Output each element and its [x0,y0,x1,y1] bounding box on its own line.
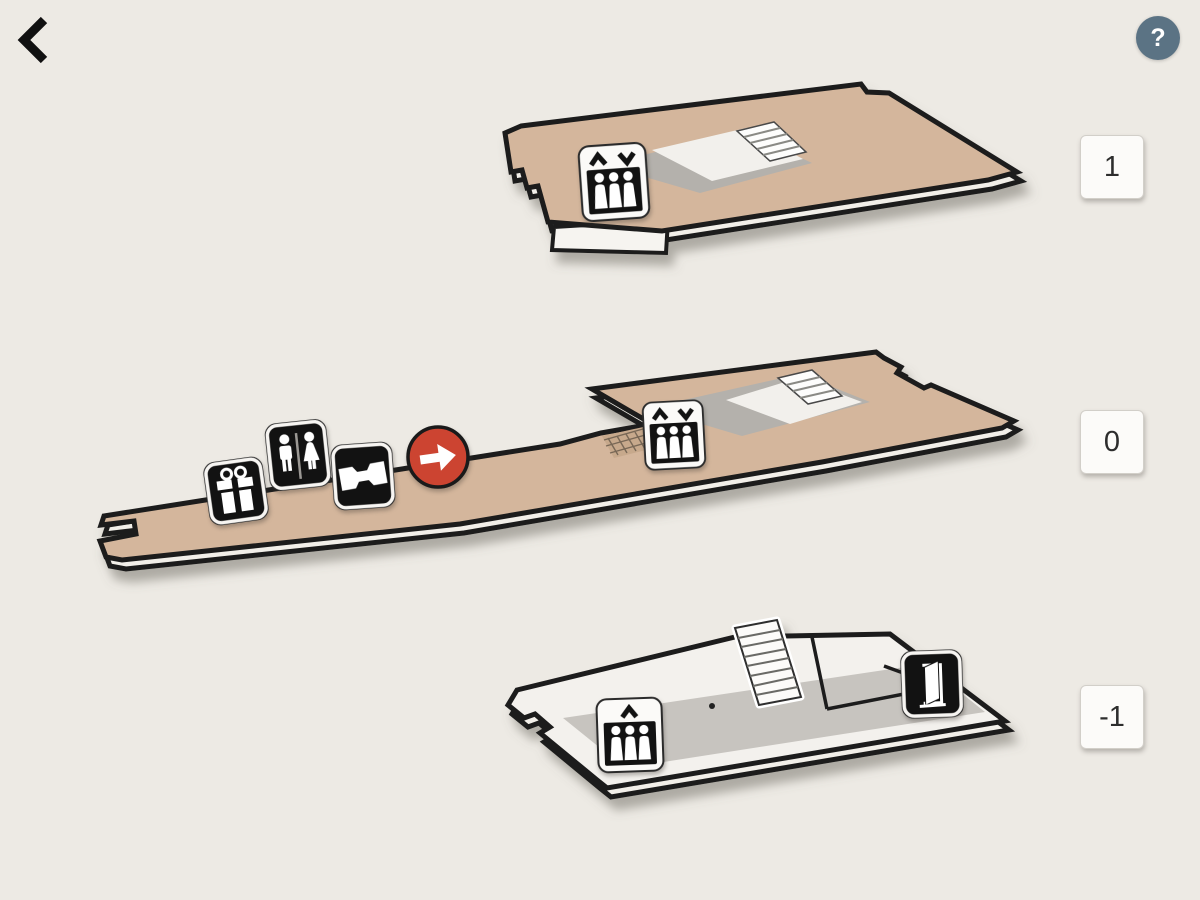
floor-selector-button-0[interactable]: 0 [1080,410,1144,474]
exit-door-art [900,649,964,719]
floor-m1-column-dot [709,703,715,709]
app-root: { "view": { "title": "building-floor-lev… [0,0,1200,900]
floor-selector-button-minus1[interactable]: -1 [1080,685,1144,749]
floor-label-1: 1 [1104,151,1120,184]
restrooms-icon[interactable] [264,418,333,492]
elevator-up-art [595,695,666,775]
floor-label-0: 0 [1104,426,1120,459]
floor-label-minus1: -1 [1099,701,1125,734]
you-are-here-arrow-icon[interactable] [404,423,472,491]
restrooms-art [264,418,333,492]
elevator-up-down-icon[interactable] [640,398,708,471]
elevator-up-down-art [640,398,708,471]
exit-door-icon[interactable] [900,649,964,719]
gift-shop-art [202,455,270,527]
you-are-here-art [404,423,472,491]
chevron-left-icon [12,14,52,66]
gift-shop-icon[interactable] [202,455,270,527]
floor-selector-button-1[interactable]: 1 [1080,135,1144,199]
tickets-icon[interactable] [330,441,396,511]
help-button-label: ? [1150,24,1165,53]
help-button[interactable]: ? [1136,16,1180,60]
elevator-up-down-icon[interactable] [575,141,652,224]
elevator-up-icon[interactable] [595,695,666,775]
back-button[interactable] [8,12,56,68]
tickets-art [330,441,396,511]
elevator-up-down-art [575,141,652,224]
